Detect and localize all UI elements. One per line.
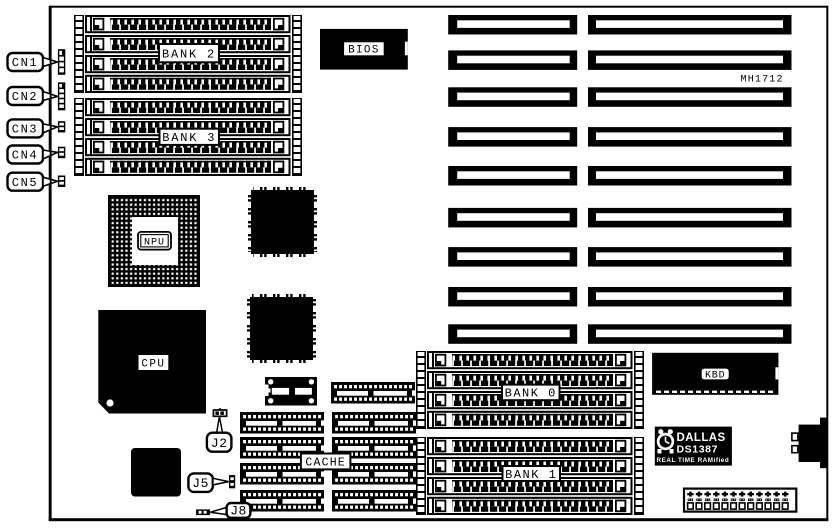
svg-text:CN5: CN5 (12, 176, 38, 190)
svg-text:CN4: CN4 (12, 149, 38, 163)
svg-text:J2: J2 (211, 436, 228, 451)
svg-text:BANK 0: BANK 0 (505, 387, 557, 401)
svg-text:CPU: CPU (141, 359, 165, 371)
svg-text:CN1: CN1 (12, 56, 38, 70)
svg-text:REAL TIME RAMified: REAL TIME RAMified (657, 457, 730, 464)
svg-text:DALLAS: DALLAS (677, 432, 726, 444)
svg-text:DS1387: DS1387 (677, 444, 719, 456)
svg-text:CN2: CN2 (12, 90, 38, 104)
svg-text:J5: J5 (192, 476, 209, 491)
svg-text:NPU: NPU (144, 238, 165, 249)
svg-text:BANK 1: BANK 1 (505, 468, 557, 482)
svg-text:CACHE: CACHE (305, 457, 346, 470)
svg-text:BIOS: BIOS (348, 45, 380, 57)
svg-text:KBD: KBD (705, 371, 725, 382)
svg-text:CN3: CN3 (12, 123, 38, 137)
svg-text:J8: J8 (230, 504, 247, 519)
svg-text:BANK 2: BANK 2 (162, 48, 216, 62)
svg-text:MH1712: MH1712 (741, 75, 784, 86)
svg-text:BANK 3: BANK 3 (162, 131, 216, 145)
